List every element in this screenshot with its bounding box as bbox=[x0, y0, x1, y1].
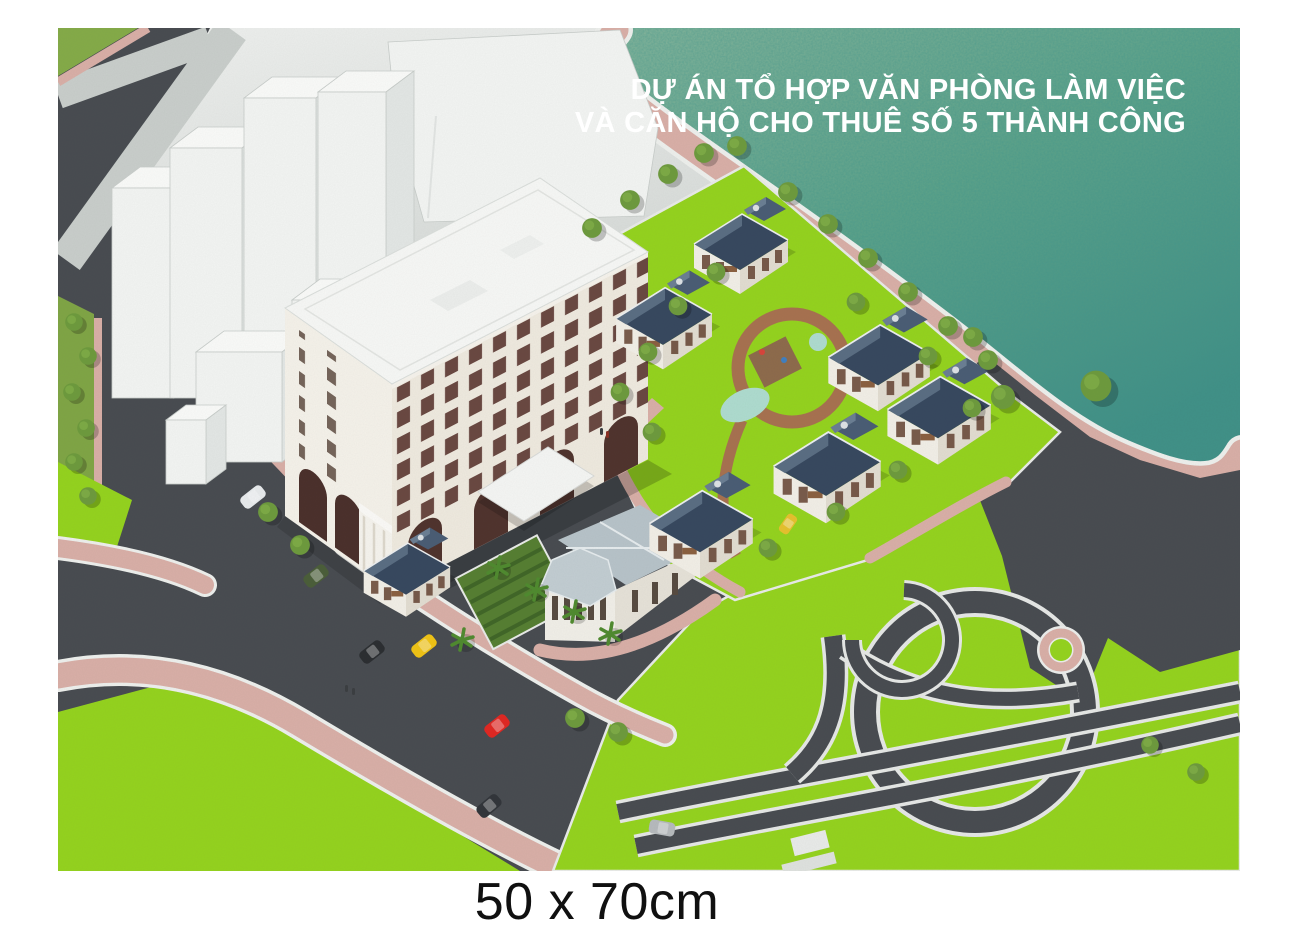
poster-page: DỰ ÁN TỔ HỢP VĂN PHÒNG LÀM VIỆC VÀ CĂN H… bbox=[0, 0, 1299, 945]
project-title: DỰ ÁN TỔ HỢP VĂN PHÒNG LÀM VIỆC VÀ CĂN H… bbox=[575, 74, 1186, 140]
project-title-line2: VÀ CĂN HỘ CHO THUÊ SỐ 5 THÀNH CÔNG bbox=[575, 107, 1186, 140]
project-title-line1: DỰ ÁN TỔ HỢP VĂN PHÒNG LÀM VIỆC bbox=[575, 74, 1186, 107]
size-caption: 50 x 70cm bbox=[397, 872, 797, 932]
architectural-rendering bbox=[0, 0, 1299, 945]
